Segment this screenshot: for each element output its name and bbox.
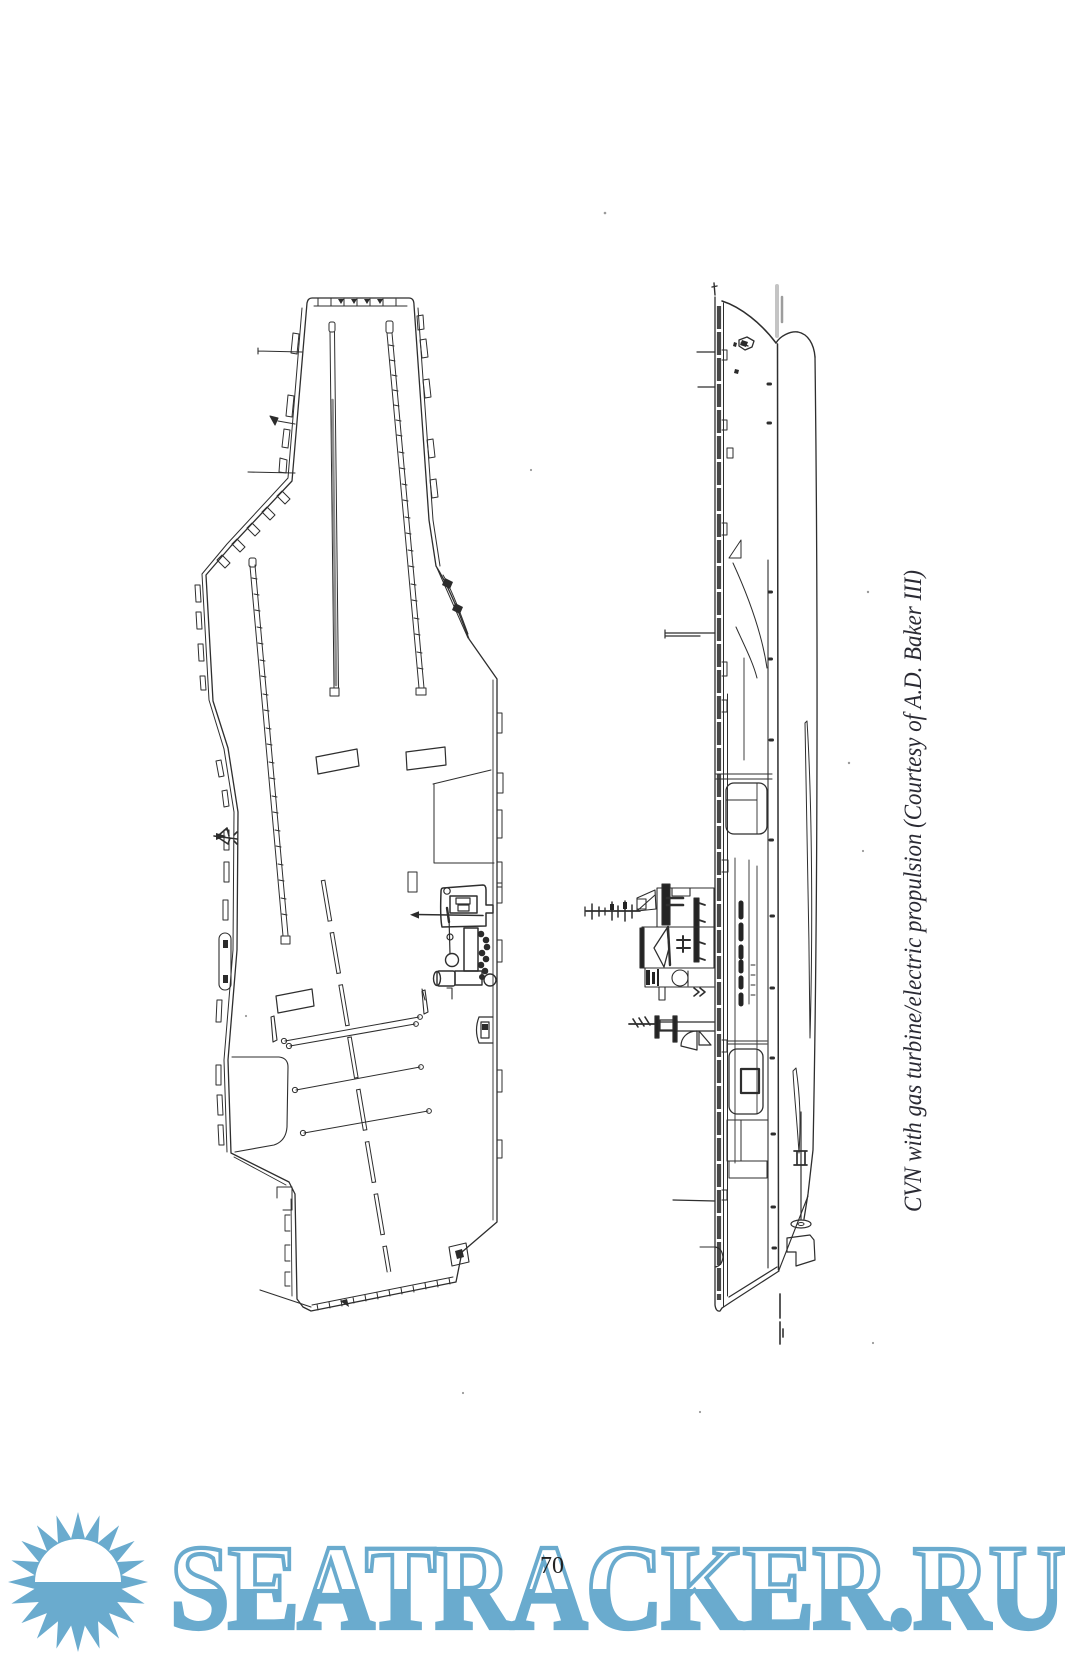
- svg-text:SEATRACKER.RU: SEATRACKER.RU: [170, 1521, 1064, 1655]
- svg-text:70: 70: [540, 1553, 564, 1579]
- svg-text:CVN with gas turbine/electric: CVN with gas turbine/electric propulsion…: [900, 570, 927, 1212]
